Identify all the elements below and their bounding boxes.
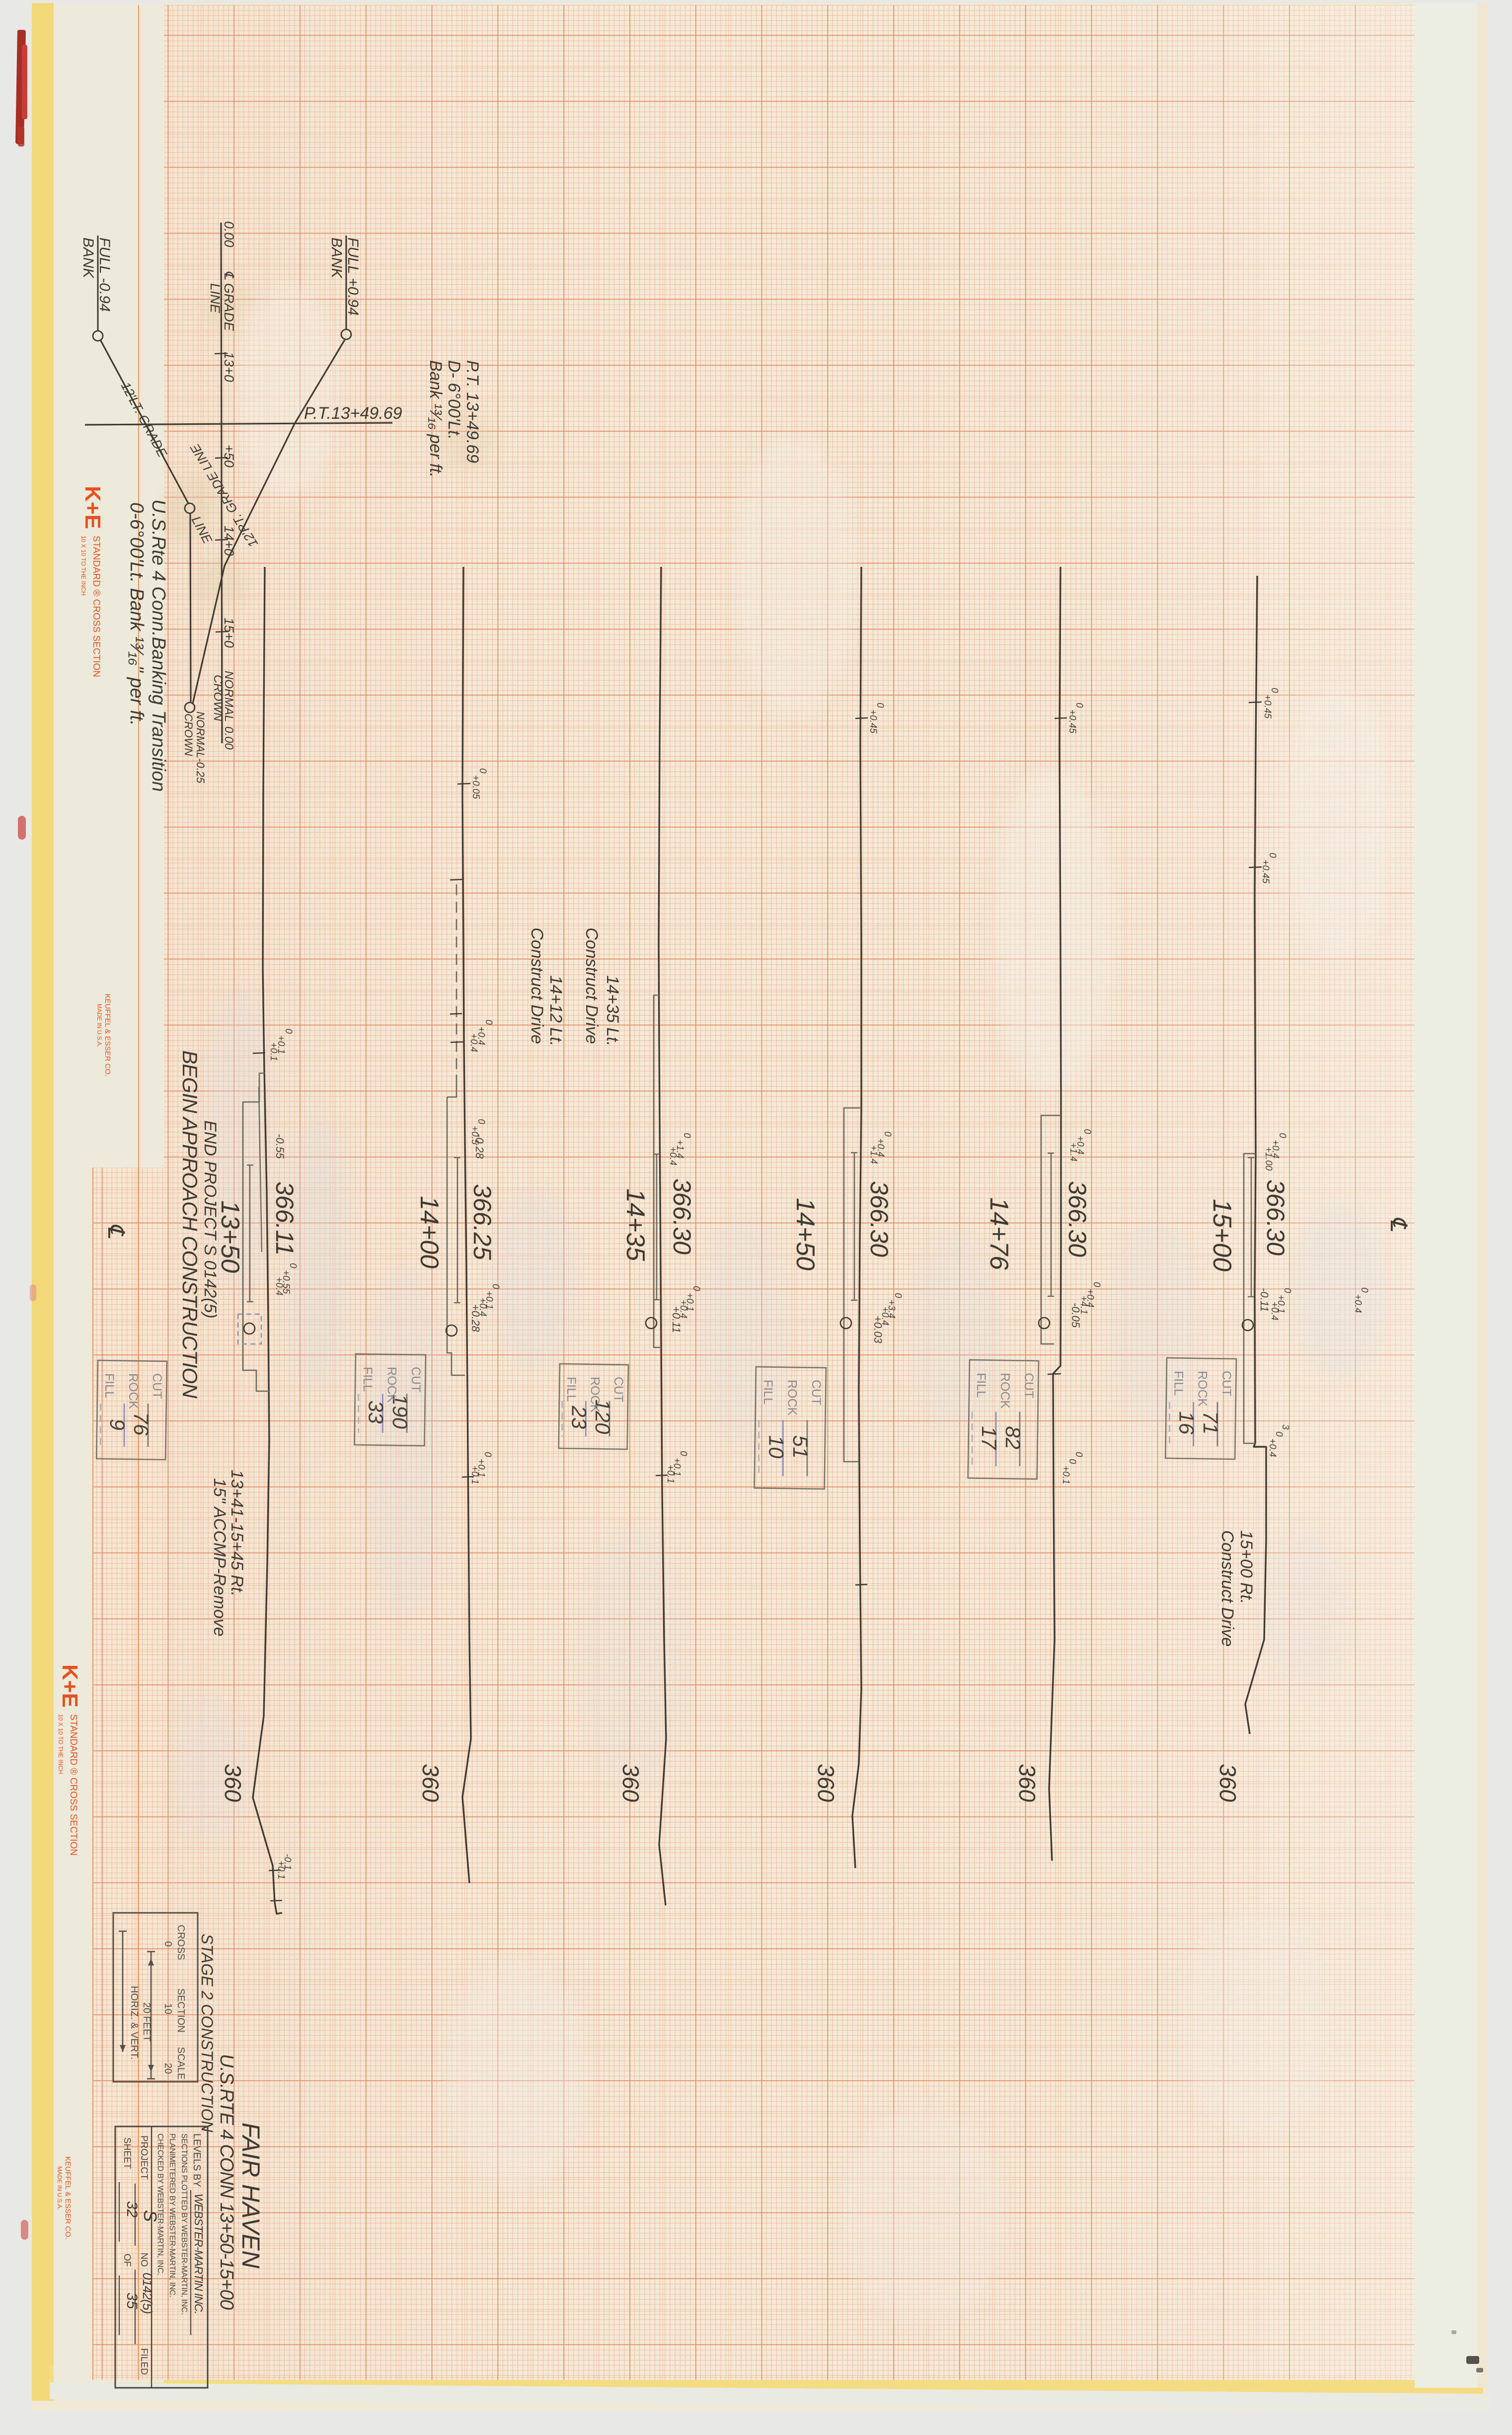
svg-text:0: 0: [288, 1263, 298, 1268]
svg-text:ROCK: ROCK: [1196, 1371, 1210, 1407]
svg-text:CUT: CUT: [611, 1377, 625, 1402]
svg-text:Bank ¹³⁄₁₆ per ft.: Bank ¹³⁄₁₆ per ft.: [426, 360, 445, 477]
svg-text:K+E: K+E: [80, 486, 105, 529]
svg-text:NORMAL-0.25: NORMAL-0.25: [194, 711, 207, 784]
svg-text:CUT: CUT: [809, 1380, 823, 1405]
svg-text:71: 71: [1199, 1411, 1222, 1434]
svg-text:0.00: 0.00: [222, 726, 235, 750]
svg-text:+0.4: +0.4: [1270, 1140, 1281, 1159]
svg-text:CUT: CUT: [1219, 1371, 1233, 1396]
svg-text:FULL +0.94: FULL +0.94: [345, 237, 361, 315]
svg-text:10 X 10 TO THE INCH: 10 X 10 TO THE INCH: [80, 536, 87, 596]
svg-text:+0.45: +0.45: [1262, 695, 1273, 719]
svg-text:17: 17: [978, 1426, 1001, 1450]
svg-text:+3.4: +3.4: [886, 1300, 897, 1319]
svg-text:0: 0: [1282, 1288, 1292, 1293]
svg-text:LINE: LINE: [189, 514, 216, 547]
svg-text:CUT: CUT: [1022, 1373, 1036, 1398]
svg-text:+0.5: +0.5: [469, 1126, 480, 1145]
svg-text:+0.4: +0.4: [476, 1026, 486, 1045]
svg-text:+0.1: +0.1: [1276, 1295, 1286, 1314]
svg-text:15+00: 15+00: [1208, 1199, 1236, 1271]
svg-text:ROCK: ROCK: [126, 1373, 140, 1410]
svg-text:SECTIONS PLOTTED BY WEBSTER-M: SECTIONS PLOTTED BY WEBSTER-MARTIN, INC.: [180, 2133, 188, 2314]
svg-text:0: 0: [893, 1293, 903, 1298]
svg-text:FILL: FILL: [361, 1367, 375, 1392]
svg-text:0: 0: [477, 768, 488, 774]
svg-text:20: 20: [162, 2063, 173, 2074]
svg-text:13+0: 13+0: [222, 352, 236, 382]
svg-text:82: 82: [1001, 1426, 1025, 1449]
svg-text:-0.1: -0.1: [282, 1854, 293, 1870]
svg-text:Construct Drive: Construct Drive: [528, 928, 546, 1044]
svg-text:0: 0: [1067, 1459, 1077, 1464]
svg-text:℄: ℄: [103, 1223, 129, 1239]
svg-text:PROJECT: PROJECT: [139, 2135, 149, 2180]
svg-text:10 X 10 TO THE INCH: 10 X 10 TO THE INCH: [57, 1714, 64, 1774]
svg-text:K+E: K+E: [58, 1664, 82, 1708]
svg-text:U.S.RTE 4 CONN 13+50-15+00: U.S.RTE 4 CONN 13+50-15+00: [216, 2054, 237, 2310]
svg-text:STANDARD ® CROSS SECTION: STANDARD ® CROSS SECTION: [68, 1714, 78, 1856]
svg-text:U.S.Rte 4 Conn.Banking Transit: U.S.Rte 4 Conn.Banking Transition: [148, 499, 169, 792]
svg-text:366.30: 366.30: [1262, 1179, 1289, 1256]
svg-text:14+50: 14+50: [791, 1198, 820, 1270]
svg-text:+0.45: +0.45: [1067, 709, 1077, 734]
svg-text:BANK: BANK: [80, 237, 96, 279]
svg-text:+50: +50: [222, 445, 236, 468]
svg-text:-0.55: -0.55: [274, 1134, 286, 1159]
svg-text:+0.1: +0.1: [1060, 1466, 1071, 1485]
svg-text:FILL: FILL: [1171, 1371, 1185, 1396]
svg-text:KEUFFEL & ESSER CO.: KEUFFEL & ESSER CO.: [64, 2156, 72, 2239]
svg-text:FILL: FILL: [564, 1377, 578, 1402]
svg-text:NO: NO: [139, 2253, 149, 2267]
svg-text:16: 16: [1175, 1411, 1199, 1434]
svg-text:0: 0: [490, 1284, 501, 1289]
svg-text:360: 360: [1215, 1764, 1241, 1802]
svg-text:+0.1: +0.1: [484, 1291, 494, 1310]
svg-text:0: 0: [691, 1286, 701, 1291]
svg-text:0: 0: [1277, 1133, 1287, 1138]
svg-text:0: 0: [283, 1028, 294, 1034]
svg-text:0: 0: [1269, 688, 1280, 693]
svg-text:360: 360: [418, 1764, 444, 1802]
svg-text:FAIR HAVEN: FAIR HAVEN: [237, 2122, 265, 2269]
svg-text:SECTION: SECTION: [175, 1988, 186, 2033]
svg-text:0: 0: [1073, 1452, 1084, 1457]
svg-text:0: 0: [1091, 1282, 1102, 1287]
svg-text:14+35 Lt.: 14+35 Lt.: [603, 975, 622, 1046]
svg-text:ROCK: ROCK: [785, 1380, 799, 1416]
svg-text:MADE IN U.S.A.: MADE IN U.S.A.: [96, 1004, 103, 1047]
svg-text:14+35: 14+35: [621, 1188, 650, 1261]
svg-text:MADE IN U.S.A.: MADE IN U.S.A.: [56, 2166, 63, 2210]
svg-text:0.00: 0.00: [222, 221, 236, 247]
svg-text:SHEET: SHEET: [122, 2137, 132, 2169]
svg-text:+0.55: +0.55: [281, 1270, 291, 1294]
svg-text:+0.4: +0.4: [1085, 1289, 1095, 1308]
svg-text:PLANIMETERED BY WEBSTER-MARTI: PLANIMETERED BY WEBSTER-MARTIN, INC.: [168, 2133, 176, 2297]
svg-text:BANK: BANK: [328, 237, 345, 279]
svg-text:+0.05: +0.05: [470, 775, 481, 799]
svg-text:14+12 Lt.: 14+12 Lt.: [546, 975, 565, 1046]
svg-text:FILL: FILL: [974, 1373, 988, 1398]
svg-text:BEGIN APPROACH CONSTRUCTION: BEGIN APPROACH CONSTRUCTION: [178, 1050, 202, 1399]
svg-text:STANDARD ® CROSS SECTION: STANDARD ® CROSS SECTION: [91, 536, 101, 677]
svg-text:+0.1: +0.1: [672, 1458, 682, 1477]
svg-text:+0.1: +0.1: [684, 1293, 695, 1312]
svg-text:+0.45: +0.45: [868, 709, 878, 734]
svg-text:0: 0: [678, 1451, 688, 1456]
svg-text:0: 0: [1074, 703, 1084, 708]
svg-text:366.11: 366.11: [271, 1181, 299, 1256]
svg-text:+1.4: +1.4: [675, 1140, 685, 1159]
svg-text:+0.4: +0.4: [1353, 1294, 1363, 1313]
svg-text:0: 0: [162, 1941, 173, 1947]
svg-text:10: 10: [764, 1435, 788, 1459]
svg-text:SCALE: SCALE: [175, 2047, 186, 2080]
svg-text:℄: ℄: [1386, 1216, 1412, 1232]
svg-text:ROCK: ROCK: [998, 1373, 1012, 1409]
svg-text:366.30: 366.30: [865, 1181, 893, 1257]
svg-text:360: 360: [220, 1764, 246, 1802]
svg-text:STAGE 2 CONSTRUCTION: STAGE 2 CONSTRUCTION: [198, 1934, 216, 2132]
svg-text:CHECKED BY WEBSTER-MARTIN, I: CHECKED BY WEBSTER-MARTIN, INC.: [156, 2133, 164, 2275]
svg-text:12'LT. GRADE: 12'LT. GRADE: [118, 380, 170, 460]
svg-text:360: 360: [1014, 1764, 1040, 1802]
svg-text:3: 3: [1280, 1424, 1290, 1430]
svg-text:+0.4: +0.4: [1267, 1438, 1278, 1457]
svg-text:9: 9: [106, 1419, 129, 1430]
svg-text:366.30: 366.30: [668, 1178, 696, 1255]
svg-text:0: 0: [681, 1133, 692, 1138]
svg-text:KEUFFEL & ESSER CO.: KEUFFEL & ESSER CO.: [103, 994, 112, 1077]
svg-text:0: 0: [1082, 1129, 1092, 1134]
svg-text:P.T. 13+49.69: P.T. 13+49.69: [463, 360, 482, 463]
svg-text:14+76: 14+76: [984, 1197, 1013, 1270]
svg-text:13+41-15+45 Rt.: 13+41-15+45 Rt.: [227, 1470, 246, 1596]
svg-text:OF: OF: [122, 2254, 132, 2267]
svg-text:FILL: FILL: [102, 1373, 116, 1398]
svg-text:14+0: 14+0: [222, 526, 236, 556]
svg-text:FULL -0.94: FULL -0.94: [96, 237, 113, 312]
svg-text:WEBSTER-MARTIN INC.: WEBSTER-MARTIN INC.: [192, 2194, 205, 2314]
svg-text:HORIZ. & VERT.: HORIZ. & VERT.: [129, 1986, 140, 2060]
svg-text:CUT: CUT: [150, 1373, 164, 1399]
svg-text:15+00 Rt.: 15+00 Rt.: [1237, 1530, 1256, 1604]
svg-text:P.T.13+49.69: P.T.13+49.69: [304, 404, 402, 423]
svg-text:0: 0: [882, 1131, 893, 1137]
svg-text:CROSS: CROSS: [175, 1925, 186, 1960]
svg-text:14+00: 14+00: [415, 1196, 444, 1268]
svg-text:360: 360: [813, 1764, 839, 1802]
svg-text:0: 0: [875, 703, 885, 708]
svg-text:+0.4: +0.4: [875, 1138, 886, 1157]
svg-text:15+0: 15+0: [222, 618, 236, 648]
svg-text:+0.4: +0.4: [1075, 1136, 1085, 1155]
svg-text:10: 10: [162, 2003, 173, 2014]
svg-text:D- 6°00'Lt.: D- 6°00'Lt.: [445, 360, 463, 440]
svg-text:0: 0: [483, 1020, 494, 1025]
svg-text:0: 0: [482, 1452, 493, 1457]
svg-text:S: S: [140, 2210, 160, 2222]
svg-text:Construct Drive: Construct Drive: [582, 928, 601, 1044]
svg-text:51: 51: [789, 1435, 812, 1459]
svg-text:END PROJECT S 0142(5): END PROJECT S 0142(5): [201, 1120, 220, 1319]
svg-text:0: 0: [1274, 1431, 1284, 1437]
svg-text:0: 0: [476, 1119, 486, 1124]
svg-text:-0.11: -0.11: [1258, 1288, 1271, 1312]
svg-text:CROWN: CROWN: [211, 675, 225, 721]
svg-text:23: 23: [567, 1405, 591, 1429]
svg-text:+0.1: +0.1: [476, 1459, 486, 1478]
svg-text:FILL: FILL: [761, 1380, 775, 1405]
svg-text:LEVELS BY: LEVELS BY: [191, 2133, 202, 2187]
svg-text:76: 76: [130, 1413, 153, 1436]
svg-text:0: 0: [1267, 853, 1278, 858]
svg-text:33: 33: [364, 1401, 387, 1424]
svg-text:LINE: LINE: [208, 283, 223, 314]
svg-text:0-6°00'Lt. Bank ¹³⁄₁₆" per ft.: 0-6°00'Lt. Bank ¹³⁄₁₆" per ft.: [126, 502, 147, 726]
svg-text:35: 35: [124, 2292, 140, 2309]
svg-text:366.25: 366.25: [468, 1184, 496, 1260]
svg-text:ROCK: ROCK: [384, 1367, 398, 1403]
svg-text:+0.45: +0.45: [1260, 860, 1271, 884]
svg-text:0142(5): 0142(5): [140, 2273, 155, 2314]
svg-text:0: 0: [1359, 1287, 1369, 1293]
svg-text:20 FEET: 20 FEET: [141, 2002, 152, 2042]
svg-text:Construct Drive: Construct Drive: [1218, 1530, 1237, 1647]
svg-text:32: 32: [124, 2201, 140, 2218]
svg-text:CROWN: CROWN: [182, 713, 195, 756]
svg-text:FILED: FILED: [139, 2348, 149, 2375]
svg-text:366.30: 366.30: [1063, 1181, 1091, 1257]
svg-text:360: 360: [618, 1764, 644, 1802]
svg-text:+0.1: +0.1: [276, 1035, 286, 1054]
svg-text:15" ACCMP-Remove: 15" ACCMP-Remove: [210, 1478, 229, 1637]
svg-text:℄ GRADE: ℄ GRADE: [222, 271, 236, 331]
svg-text:CUT: CUT: [409, 1367, 423, 1392]
